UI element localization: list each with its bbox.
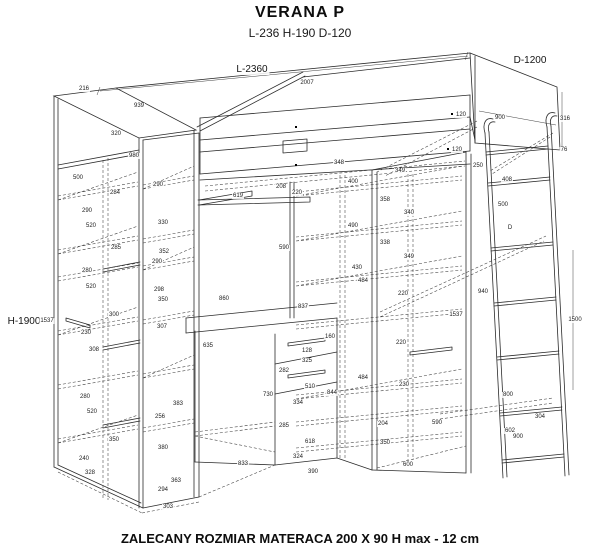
dimension-lines: [97, 52, 573, 390]
mattress-note: ZALECANY ROZMIAR MATERACA 200 X 90 H max…: [0, 531, 600, 546]
technical-drawing-page: VERANA P L-236 H-190 D-120: [0, 0, 600, 558]
furniture-line-drawing: [0, 0, 600, 558]
hidden-edges: [58, 121, 553, 513]
